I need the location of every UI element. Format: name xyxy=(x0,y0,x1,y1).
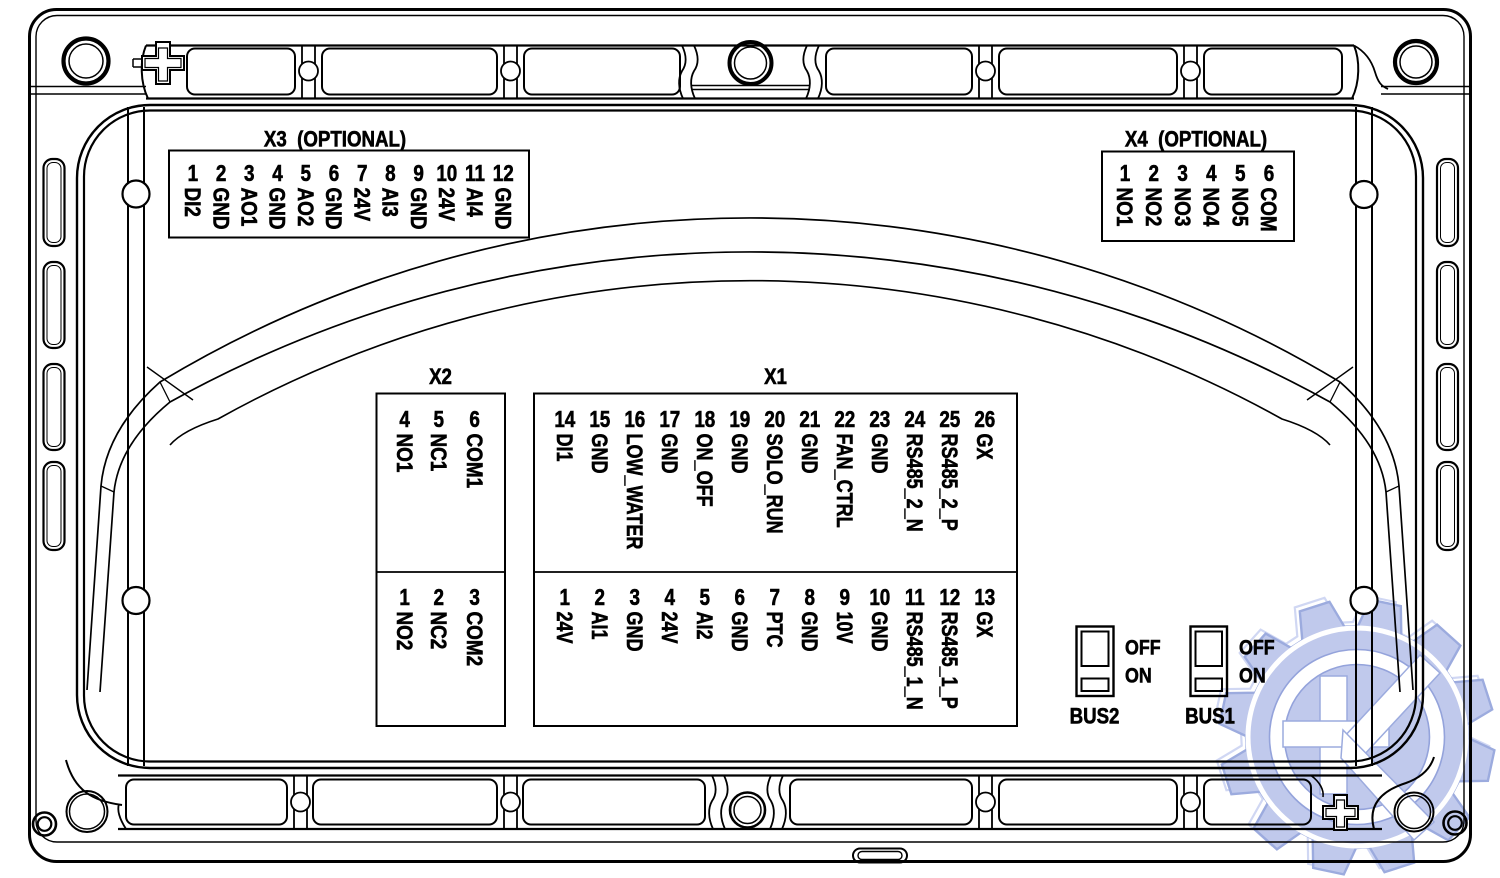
svg-text:12: 12 xyxy=(939,585,960,610)
svg-text:2: 2 xyxy=(433,585,443,610)
svg-text:21: 21 xyxy=(799,407,820,432)
svg-text:FAN_CTRL: FAN_CTRL xyxy=(832,434,856,528)
svg-text:ON: ON xyxy=(1239,664,1266,688)
svg-text:GND: GND xyxy=(587,434,611,474)
svg-text:PTC: PTC xyxy=(762,612,786,648)
svg-text:1: 1 xyxy=(188,161,199,186)
svg-text:AO2: AO2 xyxy=(293,188,318,227)
svg-text:NO2: NO2 xyxy=(391,612,416,651)
svg-text:GND: GND xyxy=(797,434,821,474)
svg-text:GND: GND xyxy=(490,188,515,230)
svg-text:GND: GND xyxy=(727,612,751,652)
svg-text:GX: GX xyxy=(972,612,996,639)
svg-text:22: 22 xyxy=(834,407,855,432)
svg-text:NO3: NO3 xyxy=(1169,188,1194,227)
svg-text:11: 11 xyxy=(905,585,925,610)
svg-text:X4 (OPTIONAL): X4 (OPTIONAL) xyxy=(1125,128,1267,152)
svg-text:7: 7 xyxy=(770,585,780,610)
svg-text:AI1: AI1 xyxy=(587,612,611,640)
svg-text:AI2: AI2 xyxy=(692,612,716,640)
svg-text:7: 7 xyxy=(357,161,367,186)
svg-text:14: 14 xyxy=(554,407,575,432)
svg-text:GND: GND xyxy=(405,188,430,230)
svg-text:5: 5 xyxy=(700,585,711,610)
svg-text:3: 3 xyxy=(630,585,640,610)
svg-text:1: 1 xyxy=(399,585,410,610)
svg-text:OFF: OFF xyxy=(1239,636,1275,660)
svg-text:13: 13 xyxy=(974,585,995,610)
svg-text:1: 1 xyxy=(1120,161,1131,186)
svg-text:24V: 24V xyxy=(552,612,576,645)
svg-text:GX: GX xyxy=(972,434,996,461)
svg-text:4: 4 xyxy=(272,161,283,186)
svg-text:NO1: NO1 xyxy=(1112,188,1137,227)
svg-text:20: 20 xyxy=(764,407,785,432)
svg-text:5: 5 xyxy=(1235,161,1246,186)
svg-text:10: 10 xyxy=(436,161,457,186)
svg-text:24V: 24V xyxy=(434,188,459,222)
svg-text:6: 6 xyxy=(1264,161,1274,186)
svg-text:ON_OFF: ON_OFF xyxy=(692,434,716,507)
svg-text:GND: GND xyxy=(867,434,891,474)
svg-text:10: 10 xyxy=(869,585,890,610)
svg-text:17: 17 xyxy=(659,407,680,432)
svg-text:COM2: COM2 xyxy=(461,612,486,667)
svg-text:NO1: NO1 xyxy=(391,434,416,473)
svg-text:SOLO_RUN: SOLO_RUN xyxy=(762,434,786,534)
svg-text:4: 4 xyxy=(1206,161,1217,186)
svg-text:1: 1 xyxy=(560,585,571,610)
svg-text:RS485_1_N: RS485_1_N xyxy=(902,612,926,710)
svg-text:19: 19 xyxy=(729,407,750,432)
svg-text:NO2: NO2 xyxy=(1141,188,1166,227)
svg-text:NC2: NC2 xyxy=(426,612,451,650)
svg-text:4: 4 xyxy=(665,585,676,610)
svg-text:GND: GND xyxy=(208,188,233,230)
svg-text:AO1: AO1 xyxy=(236,188,261,227)
svg-text:25: 25 xyxy=(939,407,960,432)
svg-text:DI2: DI2 xyxy=(180,188,205,217)
svg-text:26: 26 xyxy=(974,407,995,432)
svg-text:6: 6 xyxy=(329,161,339,186)
svg-text:X1: X1 xyxy=(764,366,787,390)
svg-text:RS485_1_P: RS485_1_P xyxy=(937,612,961,709)
svg-text:3: 3 xyxy=(244,161,254,186)
svg-text:5: 5 xyxy=(300,161,311,186)
svg-text:11: 11 xyxy=(465,161,485,186)
svg-text:OFF: OFF xyxy=(1125,636,1161,660)
svg-text:LOW_WATER: LOW_WATER xyxy=(622,434,646,550)
svg-text:X2: X2 xyxy=(429,366,452,390)
svg-text:2: 2 xyxy=(216,161,226,186)
svg-text:9: 9 xyxy=(840,585,850,610)
svg-text:2: 2 xyxy=(595,585,605,610)
svg-text:BUS1: BUS1 xyxy=(1185,705,1235,729)
svg-text:NO5: NO5 xyxy=(1227,188,1252,227)
svg-text:NO4: NO4 xyxy=(1198,188,1223,227)
svg-text:24V: 24V xyxy=(657,612,681,645)
svg-text:BUS2: BUS2 xyxy=(1070,705,1120,729)
svg-text:DI1: DI1 xyxy=(552,434,576,462)
svg-text:RS485_2_P: RS485_2_P xyxy=(937,434,961,531)
svg-text:4: 4 xyxy=(399,407,410,432)
svg-text:COM1: COM1 xyxy=(461,434,486,489)
svg-text:16: 16 xyxy=(624,407,645,432)
svg-text:3: 3 xyxy=(469,585,479,610)
svg-text:8: 8 xyxy=(805,585,816,610)
svg-text:ON: ON xyxy=(1125,664,1152,688)
svg-text:5: 5 xyxy=(433,407,444,432)
svg-text:6: 6 xyxy=(469,407,479,432)
svg-text:GND: GND xyxy=(867,612,891,652)
svg-text:6: 6 xyxy=(735,585,745,610)
svg-text:RS485_2_N: RS485_2_N xyxy=(902,434,926,532)
svg-text:24V: 24V xyxy=(349,188,374,222)
svg-text:GND: GND xyxy=(797,612,821,652)
svg-text:GND: GND xyxy=(264,188,289,230)
svg-text:GND: GND xyxy=(727,434,751,474)
svg-text:X3 (OPTIONAL): X3 (OPTIONAL) xyxy=(264,128,406,152)
svg-text:AI4: AI4 xyxy=(462,188,487,218)
svg-text:3: 3 xyxy=(1177,161,1187,186)
svg-text:18: 18 xyxy=(694,407,715,432)
svg-text:8: 8 xyxy=(385,161,396,186)
svg-text:COM: COM xyxy=(1256,188,1281,232)
svg-text:24: 24 xyxy=(904,407,925,432)
svg-text:10V: 10V xyxy=(832,612,856,645)
svg-text:AI3: AI3 xyxy=(377,188,402,217)
svg-text:NC1: NC1 xyxy=(426,434,451,472)
svg-text:GND: GND xyxy=(321,188,346,230)
svg-text:12: 12 xyxy=(493,161,514,186)
svg-text:23: 23 xyxy=(869,407,890,432)
svg-text:9: 9 xyxy=(413,161,423,186)
svg-text:GND: GND xyxy=(622,612,646,652)
svg-text:GND: GND xyxy=(657,434,681,474)
svg-text:2: 2 xyxy=(1149,161,1159,186)
svg-text:15: 15 xyxy=(589,407,610,432)
